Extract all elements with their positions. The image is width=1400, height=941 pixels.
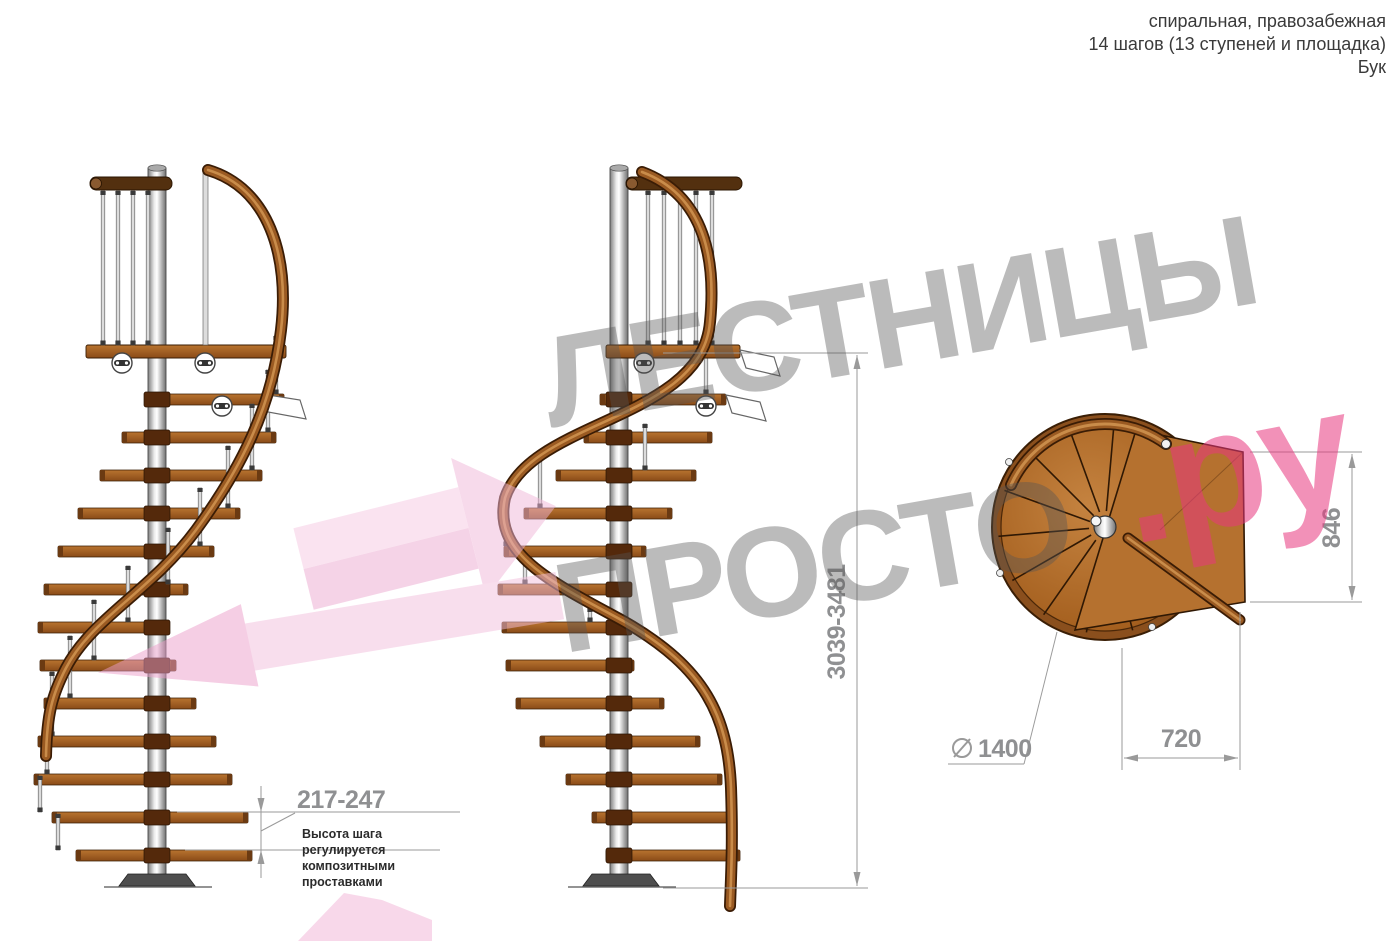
baluster — [678, 191, 682, 345]
step-collar — [606, 658, 632, 673]
rim-joint — [1006, 459, 1013, 466]
handrail-end-cap — [627, 178, 638, 189]
step-collar — [144, 810, 170, 825]
staircase-technical-drawing: 3039-3481 217-247 Высота шага регулирует… — [0, 0, 1400, 941]
baluster — [38, 776, 42, 812]
step-collar — [606, 772, 632, 787]
stair-step — [566, 774, 722, 785]
baluster — [56, 814, 60, 850]
top-plan-view — [992, 414, 1245, 640]
note-line-4: проставками — [302, 875, 383, 889]
baluster — [643, 424, 647, 470]
note-line-3: композитными — [302, 859, 395, 873]
step-collar — [144, 696, 170, 711]
spec-type: спиральная, правозабежная — [1088, 10, 1386, 33]
stair-step — [34, 774, 232, 785]
step-collar — [606, 810, 632, 825]
stair-step — [38, 736, 216, 747]
step-collar — [144, 848, 170, 863]
step-collar — [606, 430, 632, 445]
left-staircase-side-view — [34, 165, 306, 887]
step-collar — [144, 468, 170, 483]
step-collar — [606, 506, 632, 521]
handrail-end-cap — [91, 178, 102, 189]
step-collar — [144, 620, 170, 635]
step-height-note: Высота шага регулируется композитными пр… — [302, 827, 395, 889]
center-pole — [610, 168, 628, 878]
step-collar — [144, 506, 170, 521]
stair-step — [516, 698, 664, 709]
platform-depth-label: 846 — [1318, 508, 1346, 548]
step-height-label: 217-247 — [297, 786, 385, 814]
wall-bracket — [740, 350, 780, 376]
spec-steps: 14 шагов (13 ступеней и площадка) — [1088, 33, 1386, 56]
drawing-page: 3039-3481 217-247 Высота шага регулирует… — [0, 0, 1400, 941]
baluster — [662, 191, 666, 345]
handrail-joint — [1162, 440, 1171, 449]
rim-joint — [1149, 624, 1156, 631]
step-collar — [144, 772, 170, 787]
baluster — [131, 191, 135, 345]
spec-material: Бук — [1088, 56, 1386, 79]
baluster — [146, 191, 150, 345]
step-collar — [606, 848, 632, 863]
stair-step — [44, 698, 196, 709]
rim-joint — [997, 570, 1004, 577]
note-line-1: Высота шага — [302, 827, 383, 841]
step-collar — [606, 696, 632, 711]
middle-staircase-side-view — [498, 165, 780, 906]
baluster — [646, 191, 650, 345]
diameter-label: 1400 — [978, 735, 1032, 763]
step-collar — [606, 582, 632, 597]
base-flange — [583, 874, 659, 886]
pole-cap — [148, 165, 166, 171]
spec-header: спиральная, правозабежная 14 шагов (13 с… — [1088, 10, 1386, 79]
step-collar — [144, 734, 170, 749]
step-collar — [606, 544, 632, 559]
step-collar — [606, 468, 632, 483]
baluster — [101, 191, 105, 345]
step-collar — [606, 734, 632, 749]
wall-bracket — [726, 395, 766, 421]
base-flange — [119, 874, 195, 886]
baluster — [116, 191, 120, 345]
rail-post — [203, 170, 208, 345]
platform-board — [606, 345, 740, 358]
total-height-label: 3039-3481 — [823, 564, 851, 680]
step-collar — [144, 392, 170, 407]
platform-width-label: 720 — [1161, 725, 1201, 753]
center-pole — [148, 168, 166, 878]
stair-step — [58, 546, 214, 557]
step-collar — [144, 430, 170, 445]
stair-step — [584, 432, 712, 443]
platform-handrail — [90, 177, 172, 190]
pink-arrow-watermark-bottom — [298, 893, 432, 941]
note-line-2: регулируется — [302, 843, 385, 857]
hub-knob — [1091, 516, 1101, 526]
pole-cap — [610, 165, 628, 171]
